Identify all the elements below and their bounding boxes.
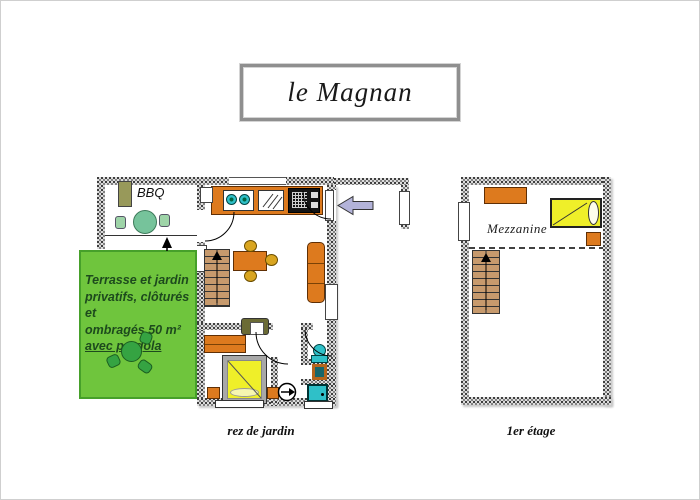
nightstand-right <box>267 387 279 399</box>
dining-chair-bottom <box>244 270 257 282</box>
shower-handle <box>321 393 324 396</box>
shower <box>307 384 328 402</box>
garden-note-line1: Terrasse et jardin <box>85 273 189 287</box>
floorplan-page: le Magnan BBQ <box>0 0 700 500</box>
stairs-ground <box>204 249 230 307</box>
bathroom-mirror <box>312 364 327 380</box>
bedroom-bench <box>215 400 264 408</box>
nightstand-left <box>207 387 220 399</box>
entry-door-leaf <box>325 190 334 221</box>
tv-chair <box>241 318 269 335</box>
stairs-first-floor <box>472 250 500 314</box>
wall-top <box>97 177 334 185</box>
wardrobe-divider <box>205 344 245 345</box>
kitchen-stove <box>258 190 284 211</box>
oven-knob-2 <box>311 202 318 208</box>
wall-entry-stub <box>334 178 409 185</box>
single-bed-pillow <box>588 201 599 225</box>
page-title: le Magnan <box>287 77 412 108</box>
bbq-label: BBQ <box>137 185 164 200</box>
terrace-chair-right <box>159 214 170 227</box>
sofa <box>307 242 325 303</box>
terrace-door-opening <box>197 210 205 242</box>
ground-floor-caption: rez de jardin <box>211 423 311 439</box>
garden-note-line2: privatifs, clôturés et <box>85 290 189 321</box>
dining-chair-right <box>265 254 278 266</box>
terrace-chair-left <box>115 216 126 229</box>
shower-tray <box>304 401 333 409</box>
first-floor-caption: 1er étage <box>481 423 581 439</box>
terrace-round-table <box>133 210 157 234</box>
title-box: le Magnan <box>240 64 460 121</box>
ff-wall-bottom <box>461 397 611 405</box>
entrance-arrow-icon <box>338 197 373 215</box>
ff-wall-top <box>461 177 611 185</box>
garden-note-line3: ombragés 50 m² <box>85 323 181 337</box>
tv-chair-seat <box>250 322 264 335</box>
window-right-wall <box>325 284 338 320</box>
wardrobe <box>204 335 246 353</box>
sofa-cushion-line-1 <box>308 263 324 264</box>
sofa-cushion-line-2 <box>308 283 324 284</box>
entry-gate <box>399 191 410 225</box>
kitchen-cabinet <box>200 187 213 203</box>
mezzanine-label: Mezzanine <box>487 221 547 237</box>
oven-grid <box>292 192 307 208</box>
dining-chair-top <box>244 240 257 252</box>
terrace-door-arc <box>205 212 234 241</box>
wall-bath-left <box>301 328 308 359</box>
sink-bowl-left <box>226 194 237 205</box>
ff-window-left <box>458 202 470 241</box>
terrace-steps <box>105 235 197 251</box>
bbq-grill <box>118 181 132 207</box>
ff-dresser <box>484 187 527 204</box>
ff-nightstand <box>586 232 601 246</box>
toilet-tank <box>311 355 328 363</box>
oven-knob-1 <box>311 192 318 198</box>
double-bed-pillow <box>230 388 259 397</box>
garden-table <box>121 341 142 362</box>
ff-wall-right <box>603 177 611 405</box>
dining-table <box>233 251 267 271</box>
sink-bowl-right <box>239 194 250 205</box>
kitchen-window <box>229 177 286 185</box>
wall-terrace-left <box>97 185 105 249</box>
